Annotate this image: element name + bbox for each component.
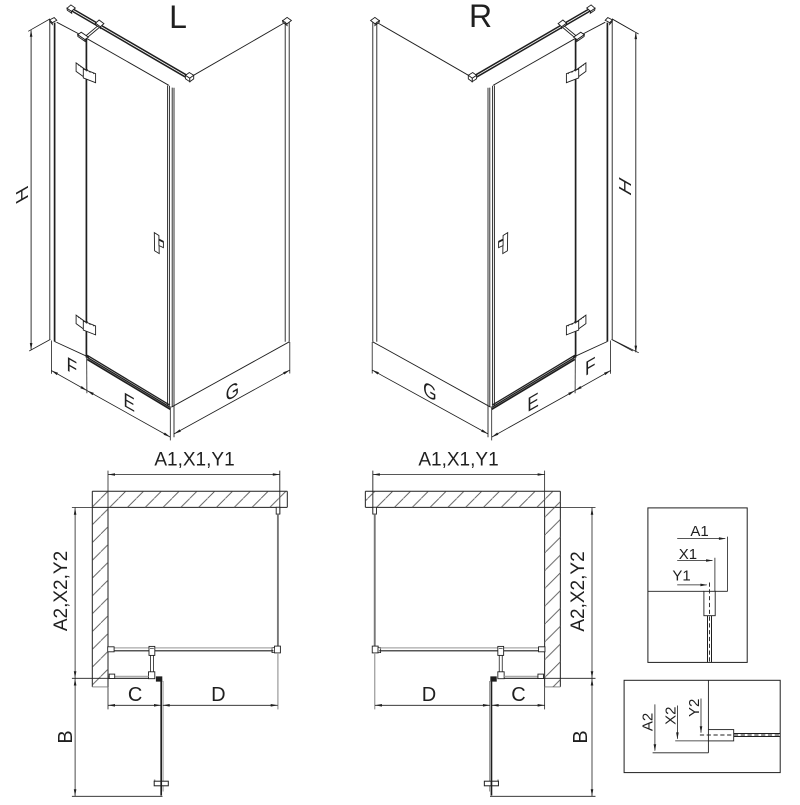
svg-text:X2: X2 bbox=[663, 707, 680, 725]
svg-text:L: L bbox=[169, 0, 187, 35]
svg-text:B: B bbox=[570, 730, 592, 743]
svg-text:D: D bbox=[211, 684, 225, 706]
svg-text:Y2: Y2 bbox=[686, 699, 703, 717]
svg-text:A2,X2,Y2: A2,X2,Y2 bbox=[568, 551, 589, 631]
svg-text:D: D bbox=[422, 684, 436, 706]
svg-text:C: C bbox=[128, 684, 142, 706]
svg-text:B: B bbox=[55, 730, 77, 743]
svg-text:Y1: Y1 bbox=[672, 568, 690, 585]
svg-text:A1,X1,Y1: A1,X1,Y1 bbox=[418, 449, 498, 470]
svg-text:X1: X1 bbox=[679, 546, 697, 563]
svg-text:A1: A1 bbox=[690, 523, 708, 540]
svg-text:R: R bbox=[469, 0, 492, 34]
svg-text:A2: A2 bbox=[640, 713, 657, 731]
svg-text:A1,X1,Y1: A1,X1,Y1 bbox=[154, 449, 234, 470]
svg-text:A2,X2,Y2: A2,X2,Y2 bbox=[51, 551, 72, 631]
svg-text:C: C bbox=[511, 684, 525, 706]
